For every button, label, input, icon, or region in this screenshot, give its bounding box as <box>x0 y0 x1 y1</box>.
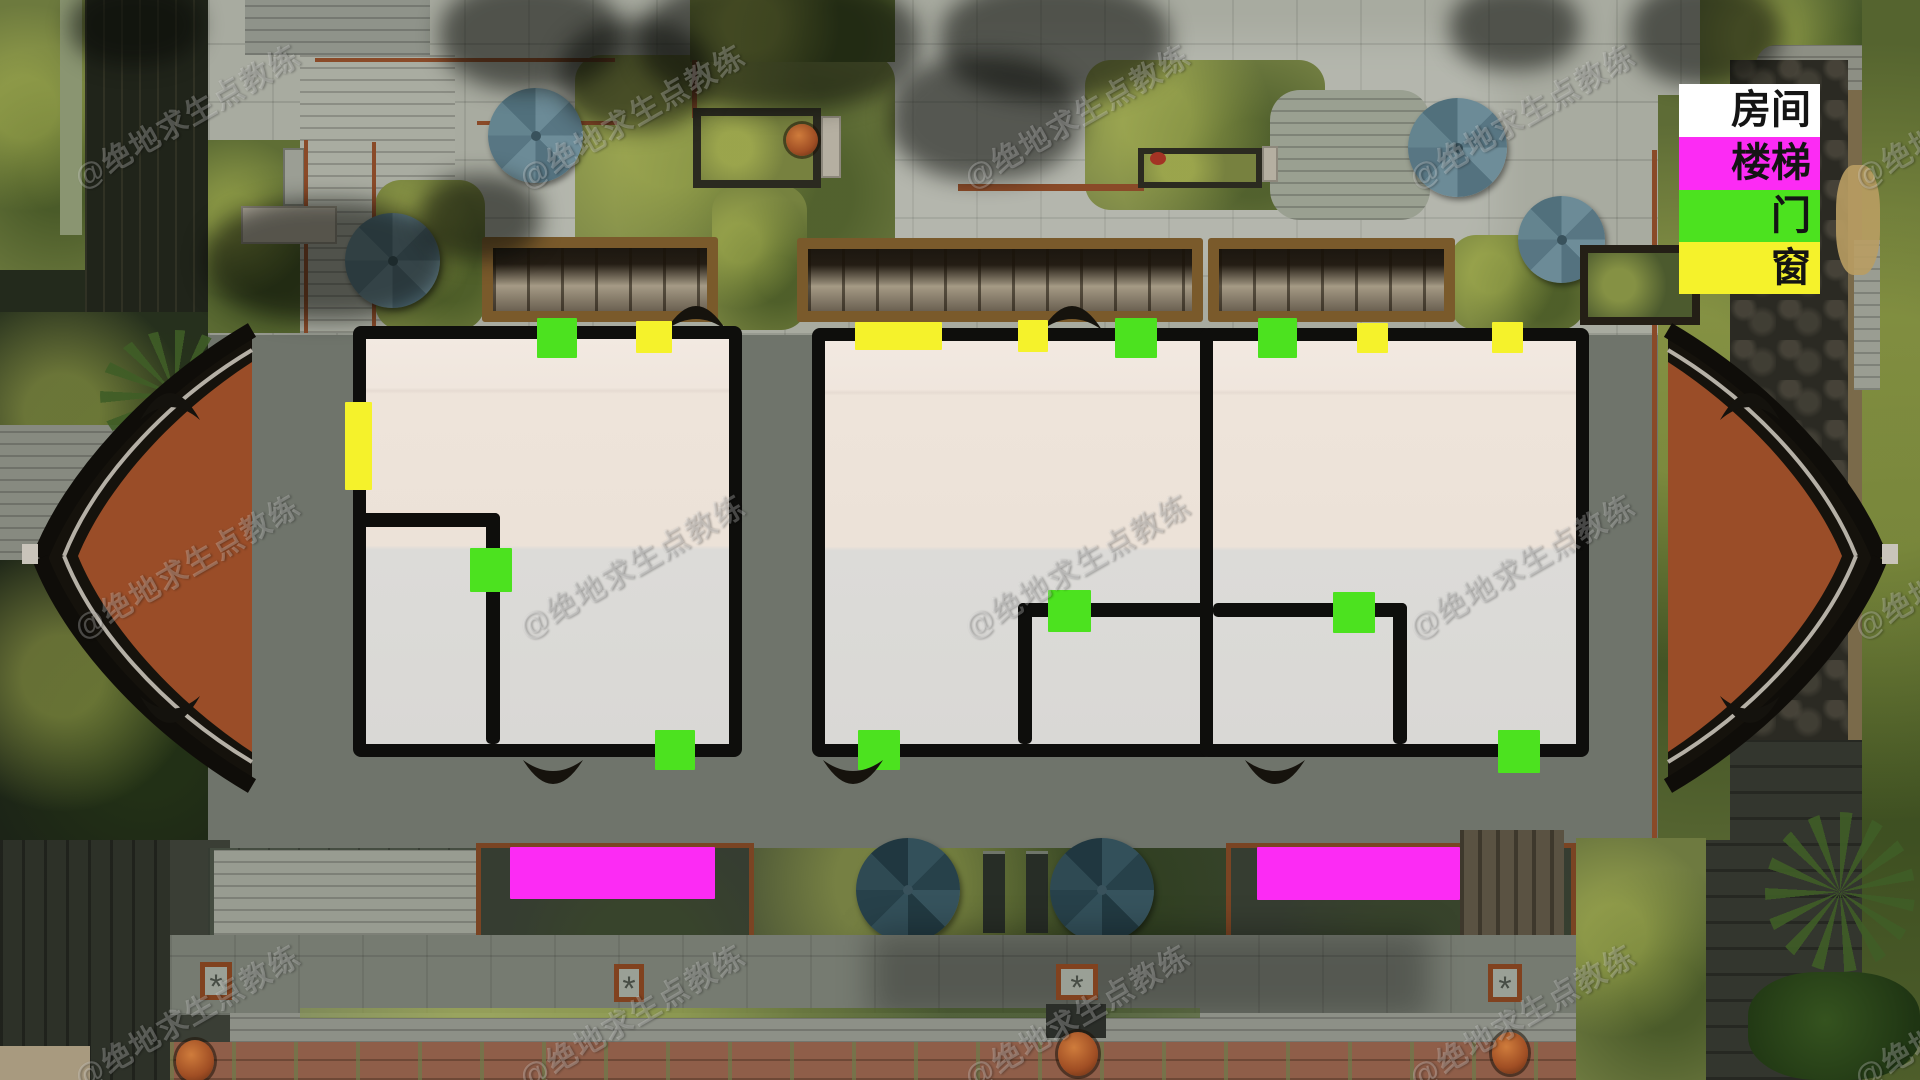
window-marker <box>1018 320 1048 352</box>
legend-window: 窗 <box>1679 242 1820 294</box>
door-marker <box>537 318 577 358</box>
legend-door-label: 门 <box>1679 190 1811 242</box>
stair-marker <box>1257 847 1460 900</box>
door-marker <box>1048 590 1091 632</box>
stair-marker <box>510 847 715 899</box>
pubg-annotated-map: @绝地求生点教练@绝地求生点教练@绝地求生点教练@绝地求生点教练@绝地求生点教练… <box>0 0 1920 1080</box>
legend-room-label: 房间 <box>1679 84 1811 136</box>
roof-horn-icon <box>521 758 585 802</box>
legend-room: 房间 <box>1679 84 1820 137</box>
door-marker <box>1258 318 1297 358</box>
legend: 房间 楼梯 门 窗 <box>1679 84 1820 294</box>
window-marker <box>855 322 942 350</box>
door-marker <box>470 548 512 592</box>
roof-horn-icon <box>1243 758 1307 802</box>
interior-wall <box>1018 603 1032 744</box>
door-marker <box>655 730 695 770</box>
door-marker <box>1333 592 1375 633</box>
interior-wall <box>355 513 500 527</box>
legend-door: 门 <box>1679 190 1820 242</box>
legend-stairs-label: 楼梯 <box>1679 137 1811 189</box>
window-marker <box>1492 322 1523 353</box>
legend-stairs: 楼梯 <box>1679 137 1820 190</box>
annotation-layer <box>0 0 1920 1080</box>
room-overlay-middle <box>812 328 1213 757</box>
interior-wall <box>1393 603 1407 744</box>
legend-window-label: 窗 <box>1679 242 1811 294</box>
interior-wall <box>1213 603 1407 617</box>
roof-horn-icon <box>821 758 885 802</box>
window-marker <box>1357 323 1388 353</box>
door-marker <box>1115 318 1157 358</box>
room-overlay-left <box>353 326 742 757</box>
window-marker <box>345 402 372 490</box>
window-marker <box>636 321 672 353</box>
door-marker <box>1498 730 1540 773</box>
